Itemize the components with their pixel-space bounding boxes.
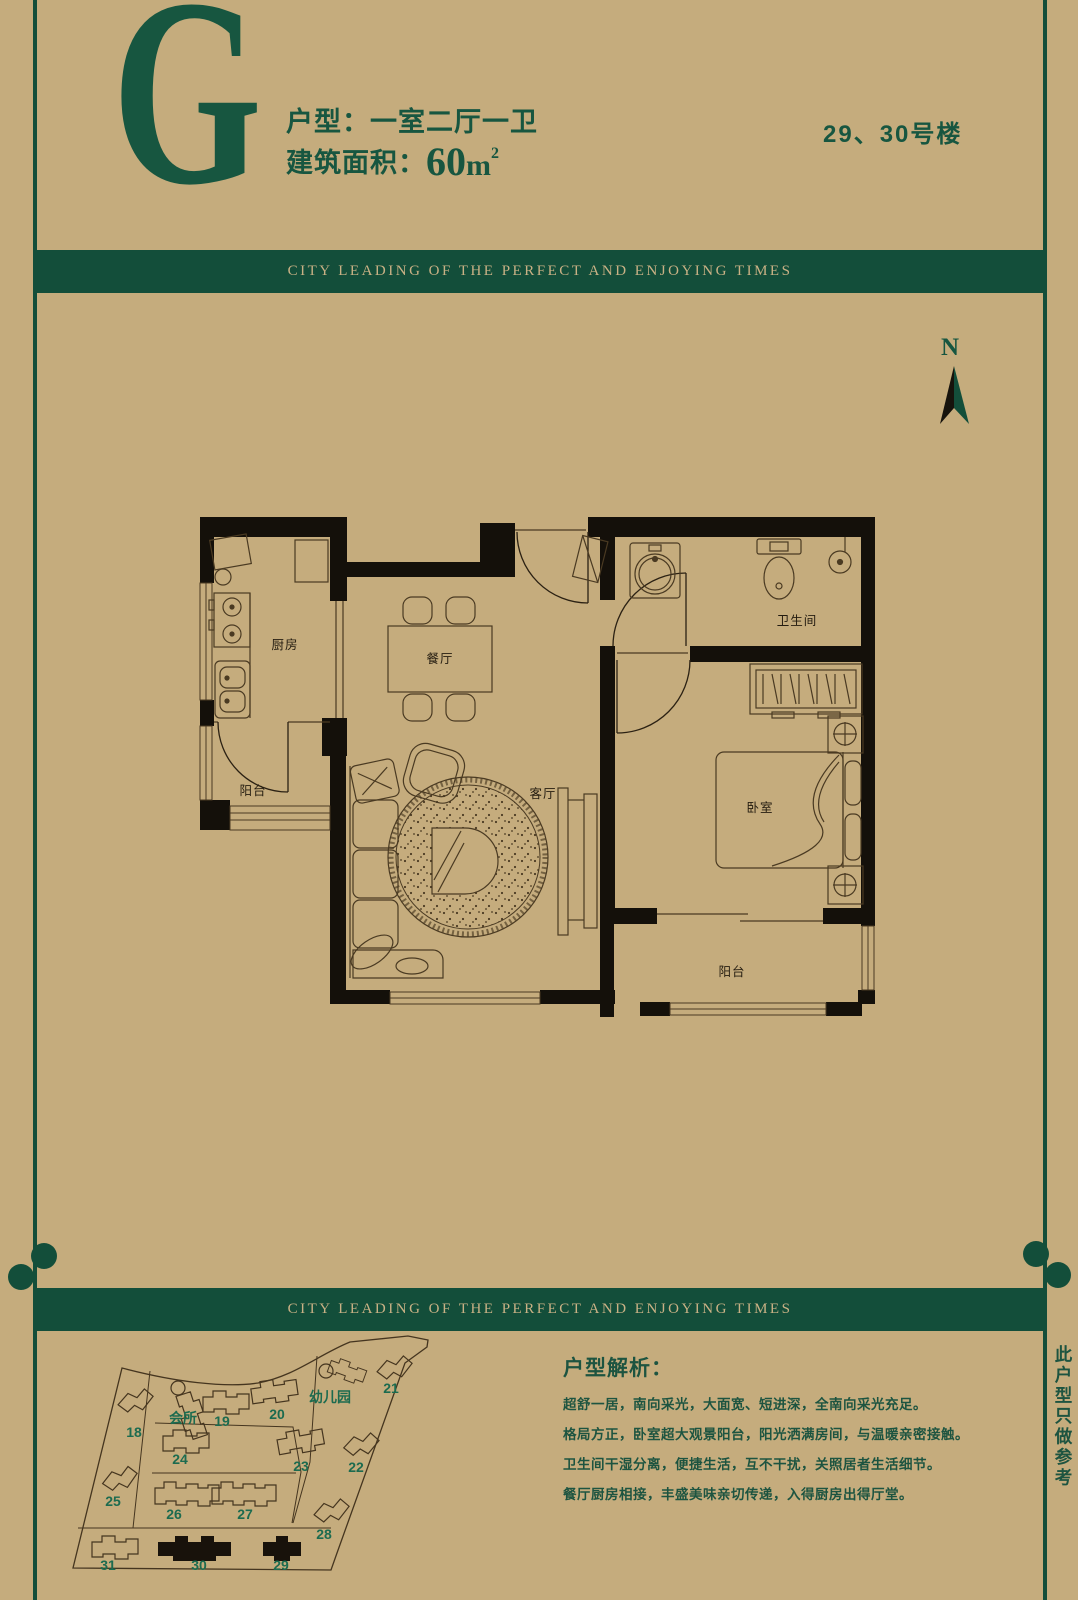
- site-number-22: 22: [348, 1459, 364, 1475]
- fridge: [210, 534, 252, 570]
- tv-cabinet: [558, 788, 597, 935]
- clubhouse-label: 会所: [169, 1410, 197, 1426]
- area-superscript: 2: [491, 145, 499, 162]
- analysis-line: 格局方正，卧室超大观景阳台，阳光洒满房间，与温暖亲密接触。: [563, 1428, 1013, 1442]
- right-rule: [1043, 0, 1047, 1600]
- unit-area-line: 建筑面积：60m2: [286, 138, 499, 185]
- dining-chair: [446, 597, 475, 624]
- kitchen-fixtures: [209, 534, 328, 718]
- balcony-left-label: 阳台: [239, 783, 266, 798]
- kindergarten-label: 幼儿园: [309, 1389, 351, 1405]
- top-banner: CITY LEADING OF THE PERFECT AND ENJOYING…: [36, 250, 1044, 293]
- unit-type-line: 户型：一室二厅一卫: [286, 100, 538, 139]
- wardrobe: [750, 664, 862, 718]
- analysis-line: 超舒一居，南向采光，大面宽、短进深，全南向采光充足。: [563, 1398, 1013, 1412]
- kitchen-sink: [215, 661, 250, 718]
- site-number-24: 24: [172, 1451, 188, 1467]
- living-label: 客厅: [529, 786, 556, 801]
- site-number-18: 18: [126, 1424, 142, 1440]
- dining-chair: [403, 694, 432, 721]
- nightstand: [828, 866, 863, 904]
- toilet: [757, 539, 801, 599]
- site-number-23: 23: [293, 1458, 309, 1474]
- floor-plan: 厨房 餐厅 阳台 客厅 卫生间 卧室 阳台: [185, 495, 885, 1030]
- site-number-31: 31: [100, 1557, 116, 1573]
- site-number-19: 19: [214, 1413, 230, 1429]
- area-number: 60: [426, 139, 466, 184]
- reference-note: 此户型只做参考: [1051, 1345, 1076, 1489]
- living-room-furniture: [345, 740, 597, 978]
- right-dot-1: [1023, 1241, 1049, 1267]
- kitchen-cabinet: [295, 540, 328, 582]
- dining-chair: [403, 597, 432, 624]
- bathroom-label: 卫生间: [777, 614, 818, 628]
- analysis-line: 卫生间干湿分离，便捷生活，互不干扰，关照居者生活细节。: [563, 1458, 1013, 1472]
- left-dot-2: [8, 1264, 34, 1290]
- building-numbers-tag: 29、30号楼: [823, 114, 962, 149]
- site-number-29: 29: [273, 1557, 289, 1573]
- site-number-25: 25: [105, 1493, 121, 1509]
- poster-page: G 户型：一室二厅一卫 建筑面积：60m2 29、30号楼 CITY LEADI…: [0, 0, 1078, 1600]
- site-number-20: 20: [269, 1406, 285, 1422]
- site-number-27: 27: [237, 1506, 253, 1522]
- kitchen-label: 厨房: [271, 637, 298, 652]
- site-number-30: 30: [191, 1557, 207, 1573]
- north-arrow-icon: [935, 360, 975, 430]
- bathroom-fixtures: [630, 537, 851, 599]
- stove: [209, 593, 250, 647]
- site-boundary: [73, 1336, 428, 1570]
- bedroom-label: 卧室: [746, 800, 773, 815]
- left-rule: [33, 0, 37, 1600]
- walls: [200, 517, 875, 1017]
- analysis-line: 餐厅厨房相接，丰盛美味亲切传递，入得厨房出得厅堂。: [563, 1488, 1013, 1502]
- balcony-bottom-label: 阳台: [718, 964, 745, 979]
- analysis-title: 户型解析：: [563, 1352, 1013, 1382]
- coffee-table: [432, 828, 498, 894]
- bottom-banner: CITY LEADING OF THE PERFECT AND ENJOYING…: [36, 1288, 1044, 1331]
- compass-n-label: N: [941, 334, 959, 362]
- unit-analysis: 户型解析： 超舒一居，南向采光，大面宽、短进深，全南向采光充足。 格局方正，卧室…: [563, 1352, 1013, 1518]
- site-number-28: 28: [316, 1526, 332, 1542]
- site-number-21: 21: [383, 1380, 399, 1396]
- site-number-26: 26: [166, 1506, 182, 1522]
- left-dot-1: [31, 1243, 57, 1269]
- unit-letter: G: [112, 0, 262, 226]
- right-dot-2: [1045, 1262, 1071, 1288]
- shower-head: [829, 537, 851, 573]
- site-map: 18 19 20 21 22 23 24 25 26 27 28 29 30 3…: [55, 1330, 455, 1600]
- bathroom-sink: [630, 543, 680, 598]
- nightstand: [828, 716, 863, 753]
- dining-label: 餐厅: [426, 651, 453, 666]
- dining-chair: [446, 694, 475, 721]
- bedroom-furniture: [716, 664, 863, 904]
- bed: [716, 752, 861, 868]
- area-unit: m: [466, 149, 491, 182]
- area-label: 建筑面积：: [286, 148, 426, 178]
